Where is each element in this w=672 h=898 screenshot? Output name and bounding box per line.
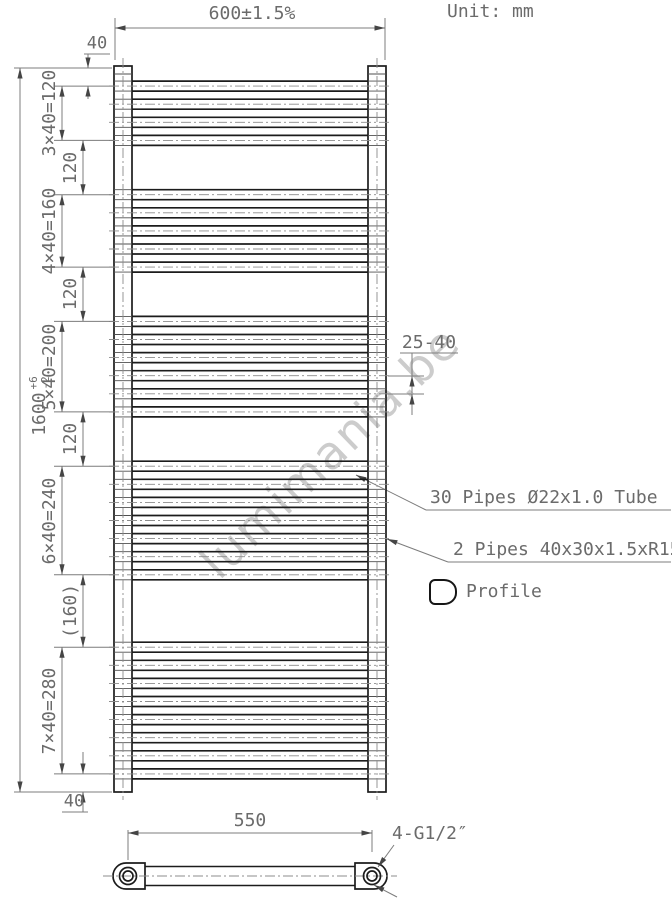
connection-leader-top — [378, 845, 394, 867]
top-offset-label: 40 — [87, 36, 107, 53]
unit-label: Unit: mm — [447, 3, 534, 21]
radiator-technical-drawing: lumimania.be — [0, 0, 672, 898]
bottom-view — [103, 830, 397, 897]
center-distance-label: 550 — [234, 812, 267, 830]
pitch-callout — [388, 353, 458, 415]
pitch-range-label: 25-40 — [402, 334, 456, 352]
width-dimension — [115, 18, 385, 60]
side-tubes-note: 2 Pipes 40x30x1.5xR15 — [453, 541, 672, 559]
dimension-label: (160) — [62, 584, 80, 638]
profile-icon — [429, 579, 457, 605]
drawing-canvas — [0, 0, 672, 898]
dimension-label: 5×40=200 — [41, 323, 59, 410]
dimension-label: 6×40=240 — [41, 477, 59, 564]
top-offset-dimension — [84, 54, 110, 99]
dimension-label: 120 — [62, 423, 80, 456]
profile-label: Profile — [466, 583, 542, 601]
width-dimension-label: 600±1.5% — [209, 5, 296, 23]
connection-leader-bottom — [374, 885, 397, 897]
dimension-label: 120 — [62, 278, 80, 311]
dimension-label: 7×40=280 — [41, 667, 59, 754]
connection-label: 4-G1/2″ — [392, 825, 468, 843]
dimension-label: 120 — [62, 151, 80, 184]
bottom-offset-label: 40 — [64, 794, 84, 811]
dimension-label: 3×40=120 — [41, 70, 59, 157]
dimension-label: 4×40=160 — [41, 188, 59, 275]
pipes-and-dimension-chain — [54, 81, 391, 779]
pipes-note: 30 Pipes Ø22x1.0 Tube — [430, 489, 658, 507]
